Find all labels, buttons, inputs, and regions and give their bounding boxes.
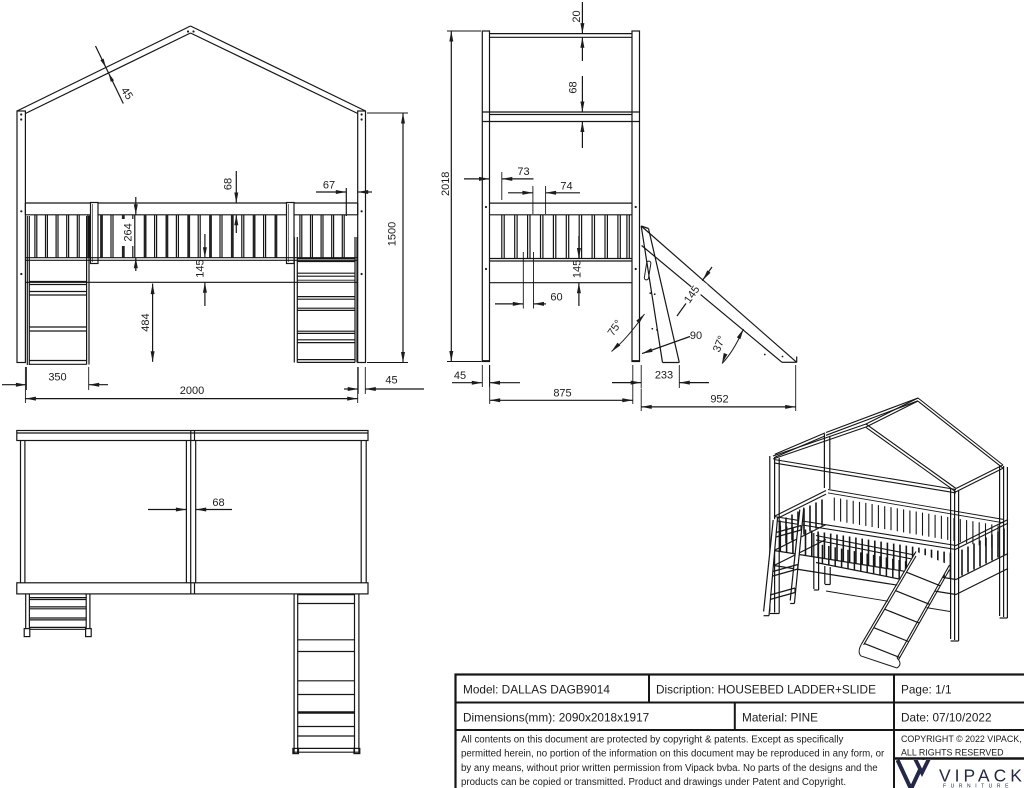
svg-text:Page: 1/1: Page: 1/1 [901, 683, 952, 697]
svg-text:145: 145 [194, 259, 206, 277]
svg-text:68: 68 [568, 81, 580, 93]
svg-text:233: 233 [655, 370, 673, 382]
svg-text:F U R N I T U R E: F U R N I T U R E [943, 784, 1010, 788]
svg-text:68: 68 [212, 497, 224, 509]
svg-text:2000: 2000 [180, 385, 204, 397]
svg-text:875: 875 [553, 388, 571, 400]
svg-text:Material: PINE: Material: PINE [742, 711, 818, 725]
svg-text:45: 45 [385, 375, 397, 387]
svg-text:COPYRIGHT © 2022 VIPACK,: COPYRIGHT © 2022 VIPACK, [901, 734, 1022, 744]
svg-text:All contents on this document: All contents on this document are protec… [461, 735, 843, 746]
svg-text:145: 145 [572, 260, 584, 278]
svg-text:68: 68 [223, 178, 235, 190]
svg-text:Discription: HOUSEBED LADDER+S: Discription: HOUSEBED LADDER+SLIDE [656, 683, 876, 697]
svg-text:Model: DALLAS DAGB9014: Model: DALLAS DAGB9014 [463, 683, 610, 697]
svg-text:952: 952 [710, 394, 728, 406]
svg-text:45: 45 [454, 370, 466, 382]
svg-text:VIPACK: VIPACK [939, 766, 1024, 786]
svg-text:67: 67 [323, 180, 335, 192]
svg-text:90: 90 [690, 330, 702, 342]
svg-text:2018: 2018 [440, 172, 452, 196]
svg-text:264: 264 [122, 223, 134, 241]
svg-text:by any means, without prior wr: by any means, without prior written perm… [461, 763, 878, 774]
svg-text:Date: 07/10/2022: Date: 07/10/2022 [901, 711, 992, 725]
svg-text:ALL RIGHTS RESERVED: ALL RIGHTS RESERVED [901, 748, 1004, 758]
svg-text:350: 350 [48, 372, 66, 384]
svg-text:60: 60 [550, 292, 562, 304]
svg-text:Dimensions(mm): 2090x2018x1917: Dimensions(mm): 2090x2018x1917 [463, 711, 649, 725]
svg-text:permitted herein, no portion o: permitted herein, no portion of the info… [461, 749, 885, 760]
svg-text:1500: 1500 [387, 222, 399, 246]
svg-text:products can be copied or tran: products can be copied or transmitted. P… [461, 777, 846, 788]
svg-text:74: 74 [560, 181, 572, 193]
svg-text:73: 73 [517, 166, 529, 178]
svg-text:20: 20 [571, 10, 583, 22]
svg-text:484: 484 [140, 313, 152, 331]
